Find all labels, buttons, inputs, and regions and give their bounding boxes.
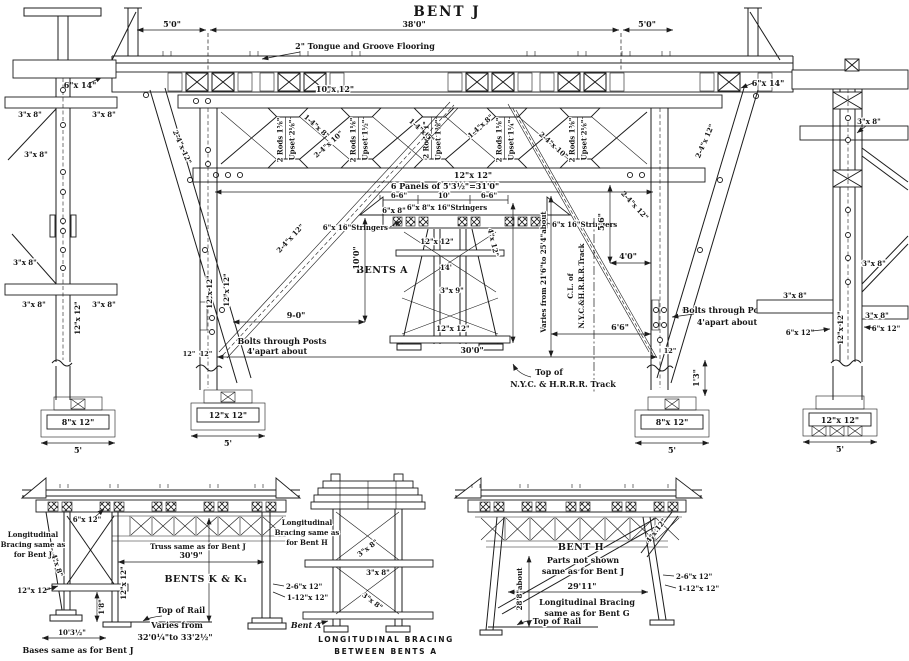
kk-span-dim: 30'9" bbox=[179, 550, 202, 560]
footing-timber-label: 12"x 12" bbox=[209, 410, 247, 420]
batter-left-label: 2-4"x 12" bbox=[171, 129, 194, 166]
bh-note-1: Parts not shown bbox=[547, 555, 619, 565]
footing-width-label: 5' bbox=[224, 438, 232, 448]
stringer-top-label: 6"x 8"x 16"Stringers bbox=[407, 203, 487, 212]
brace-size-label: 3"x 8" bbox=[857, 117, 881, 126]
brace-size-label: 3"x 8" bbox=[862, 259, 886, 268]
post-width-label: 12" bbox=[200, 350, 212, 358]
wall-size-right-label: 6"x 14" bbox=[752, 78, 785, 88]
kk-dim-10-3: 10'3½" bbox=[58, 628, 86, 637]
brace-size-label: 3"x 8" bbox=[783, 291, 807, 300]
truss-diagonal-label: 1-4"x 8" bbox=[302, 112, 331, 140]
trestle-bent-engineering-drawing: BENT J 5'0" 38'0" 5'0" 2" Tongue and Gro… bbox=[0, 0, 909, 661]
bolts-note-left-1: Bolts through Posts bbox=[237, 336, 327, 346]
bh-leg-size-label: 4"x 12" bbox=[644, 516, 668, 544]
rod-label: 2 Rods 1⅛" bbox=[495, 118, 504, 163]
post-left-label-2: 12"x 12" bbox=[222, 273, 231, 306]
bolts-note-left-2: 4'apart about bbox=[247, 346, 308, 356]
wale-size-label: 6"x 12" bbox=[786, 328, 815, 337]
brace-size-label: 3"x 8" bbox=[92, 110, 116, 119]
stringer-left-label: 6"x 16"Stringers bbox=[323, 223, 388, 232]
ba-bent-a-label: Bent A bbox=[290, 620, 321, 630]
inner-diagonal-right-label: 2-4"x 12" bbox=[619, 189, 650, 222]
dim-right-overhang: 5'0" bbox=[638, 19, 656, 29]
bh-span-dim: 29'11" bbox=[568, 581, 597, 591]
footing-width-label: 5' bbox=[668, 445, 676, 455]
page-title: BENT J bbox=[413, 4, 480, 20]
bh-title: BENT H bbox=[558, 542, 604, 553]
dim-30-0: 30'0" bbox=[460, 345, 483, 355]
kk-right-post-note-2: 1-12"x 12" bbox=[287, 593, 328, 602]
varies-note: Varies from 21'6"to 25'4"about bbox=[539, 211, 548, 334]
kk-varies-1: Varies from bbox=[150, 620, 203, 630]
tower-brace-label: 3"x 9" bbox=[440, 286, 464, 295]
dim-left-overhang: 5'0" bbox=[163, 19, 181, 29]
kk-post-left-label: 12"x 12" bbox=[17, 586, 50, 595]
upset-label: Upset 2⅛" bbox=[288, 120, 297, 161]
ba-brace-label: 3"x 8" bbox=[360, 590, 384, 611]
dim-12: 12" bbox=[664, 347, 676, 355]
panels-dim-label: 6 Panels of 5'3½"=31'0" bbox=[391, 181, 499, 191]
truss: 10"x 12" 12"x 12" 2 Rods 1⅝" Upset 2⅛" 2… bbox=[178, 84, 722, 182]
dim-5-6: 5'6" bbox=[596, 213, 606, 231]
truss-diagonal-label: 1-4"x 8" bbox=[466, 112, 495, 140]
brace-size-label: 3"x 8" bbox=[13, 258, 37, 267]
brace-size-label: 3"x 8" bbox=[18, 110, 42, 119]
kk-bases-note: Bases same as for Bent J bbox=[22, 645, 133, 655]
brace-size-label: 3"x 8" bbox=[865, 311, 889, 320]
inner-diagonal-left-label: 2-4"x 12" bbox=[275, 222, 306, 255]
dim-1-3: 1'3" bbox=[691, 369, 701, 387]
flooring-note: 2" Tongue and Groove Flooring bbox=[295, 41, 435, 51]
tower-sill-label: 12"x 12" bbox=[436, 324, 469, 333]
dim-6-6: 6'6" bbox=[611, 322, 629, 332]
footing-left-main: 12"x 12" 5' bbox=[191, 390, 265, 448]
bents-a-title: BENTS A bbox=[356, 265, 408, 276]
wall-size-left-label: 6"x 14" bbox=[64, 80, 97, 90]
stringer-68-label: 6"x 8" bbox=[382, 206, 406, 215]
wall-beam: 6"x 14" 6"x 14" bbox=[64, 72, 793, 92]
kk-bracing-note-2: Bracing same as bbox=[1, 540, 66, 549]
footing-far-right: 12"x 12" 5' bbox=[803, 366, 877, 454]
kk-right-post-note-1: 2-6"x 12" bbox=[286, 582, 322, 591]
bolts-note-right-2: 4'apart about bbox=[697, 317, 758, 327]
tower-height-label: 14' bbox=[440, 263, 452, 272]
bracing-between-bents-a: Longitudinal Bracing same as for Bent H … bbox=[275, 474, 454, 656]
brace-size-label: 3"x 8" bbox=[24, 150, 48, 159]
post-left-label: 12"x 12" bbox=[205, 275, 214, 308]
batter-right-label: 2-4"x 12" bbox=[693, 123, 716, 160]
rod-label: 2 Rods 1⅝" bbox=[276, 118, 285, 163]
subdim-10: 10' bbox=[438, 191, 450, 200]
footing-timber-label: 8"x 12" bbox=[656, 417, 689, 427]
top-of-track-2: N.Y.C. & H.R.R.R. Track bbox=[510, 379, 616, 389]
bh-right-post-note-1: 2-6"x 12" bbox=[676, 572, 712, 581]
footing-timber-label: 8"x 12" bbox=[62, 417, 95, 427]
bh-right-post-note-2: 1-12"x 12" bbox=[678, 584, 719, 593]
kk-title: BENTS K & K₁ bbox=[164, 574, 247, 585]
kk-leg-size-label: 4"x 8" bbox=[49, 553, 65, 578]
post-size-label: 12"x 12" bbox=[836, 311, 845, 344]
ba-brace-label: 3"x 8" bbox=[355, 537, 379, 558]
ba-caption-1: LONGITUDINAL BRACING bbox=[318, 635, 454, 644]
upset-label: Upset 1¼" bbox=[507, 120, 516, 161]
subdim-66-left: 6-6" bbox=[391, 191, 407, 200]
kk-bracing-note-3: for Bent J bbox=[14, 550, 53, 559]
rod-label: 2 Rods 1⅛" bbox=[349, 118, 358, 163]
bottom-chord-label: 12"x 12" bbox=[454, 170, 492, 180]
kk-post-right-label: 12"x 12" bbox=[119, 566, 128, 599]
top-chord-label: 10"x 12" bbox=[316, 84, 354, 94]
ba-note-1: Longitudinal bbox=[282, 518, 333, 527]
ba-caption-2: BETWEEN BENTS A bbox=[334, 647, 437, 656]
subdim-66-right: 6-6" bbox=[481, 191, 497, 200]
ba-note-2: Bracing same as bbox=[275, 528, 340, 537]
bh-top-of-rail: Top of Rail bbox=[533, 616, 581, 626]
cl-note-1: C.L. of bbox=[566, 272, 575, 298]
footing-far-left: 8"x 12" 5' bbox=[41, 366, 115, 455]
footing-width-label: 5' bbox=[836, 444, 844, 454]
ba-note-3: for Bent H bbox=[286, 538, 328, 547]
top-of-track-1: Top of bbox=[535, 367, 563, 377]
dim-span: 38'0" bbox=[402, 19, 425, 29]
end-view-right: 3"x 8" 3"x 8" 3"x 8" 3"x 8" 6"x 12" 6"x … bbox=[757, 59, 908, 454]
kk-top-of-rail: Top of Rail bbox=[157, 605, 205, 615]
dim-10-0: 10'0" bbox=[351, 246, 361, 269]
footing-width-label: 5' bbox=[74, 445, 82, 455]
kk-bracing-note-1: Longitudinal bbox=[8, 530, 59, 539]
bh-note-3: Longitudinal Bracing bbox=[539, 597, 635, 607]
bh-height-dim: 28'8"about bbox=[515, 567, 524, 611]
footing-timber-label: 12"x 12" bbox=[821, 415, 859, 425]
footing-right-main: 8"x 12" 5' bbox=[635, 397, 709, 455]
brace-size-label: 3"x 8" bbox=[92, 300, 116, 309]
kk-dim-1-8: 1'8" bbox=[97, 599, 106, 615]
bh-note-2: same as for Bent J bbox=[542, 566, 624, 576]
ba-beam-label: 3"x 8" bbox=[366, 568, 390, 577]
dim-4-0: 4'0" bbox=[619, 251, 637, 261]
cl-note-2: N.Y.C.&H.R.R.R.Track bbox=[577, 243, 586, 328]
end-view-left: 3"x 8" 3"x 8" 3"x 8" 3"x 8" 3"x 8" 3"x 8… bbox=[5, 8, 117, 455]
brace-size-label: 3"x 8" bbox=[22, 300, 46, 309]
bents-k-k1-view: Longitudinal Bracing same as for Bent J … bbox=[1, 478, 329, 655]
dim-9-0: 9-0" bbox=[287, 310, 306, 320]
bent-h-view: BENT H Parts not shown same as for Bent … bbox=[455, 478, 719, 635]
post-size-label: 12"x 12" bbox=[73, 301, 82, 334]
kk-cap-size-label: 6"x 12" bbox=[73, 515, 102, 524]
upset-label: Upset 1½" bbox=[361, 120, 370, 161]
upset-label: Upset 2⅛" bbox=[580, 120, 589, 161]
tower-cap-label: 12"x 12" bbox=[420, 237, 453, 246]
drawing-sheet: BENT J 5'0" 38'0" 5'0" 2" Tongue and Gro… bbox=[0, 0, 909, 661]
panel-dimension-row: 6 Panels of 5'3½"=31'0" 6-6" 10' 6-6" bbox=[215, 181, 653, 204]
wale-size-label: 6"x 12" bbox=[872, 324, 901, 333]
main-elevation-bent-j: BENT J 5'0" 38'0" 5'0" 2" Tongue and Gro… bbox=[64, 4, 793, 455]
kk-varies-2: 32'0¼"to 33'2½" bbox=[137, 632, 212, 642]
stringer-right-label: 6"x 16"Stringers bbox=[552, 220, 617, 229]
rod-label: 2 Rods 1⅝" bbox=[568, 118, 577, 163]
post-width-label: 12" bbox=[183, 350, 195, 358]
